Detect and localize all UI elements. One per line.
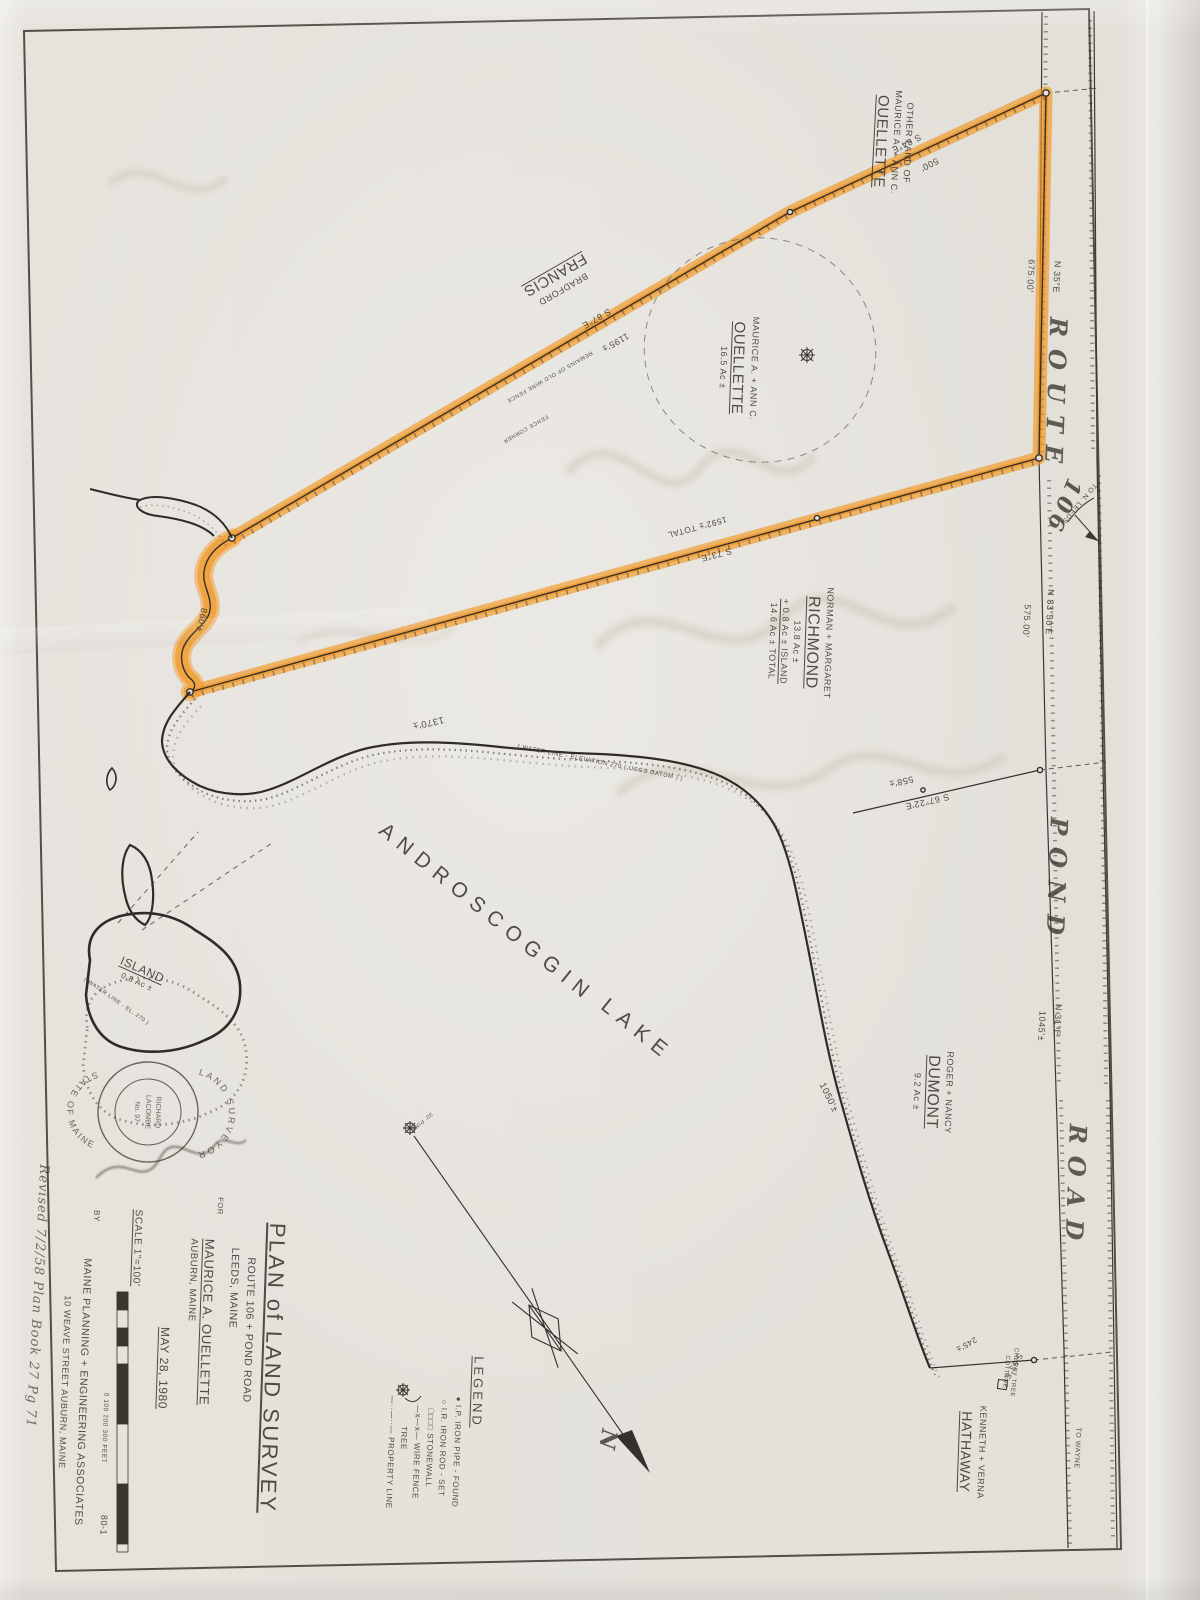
dist-860: 860'± <box>193 607 210 634</box>
title-plan-of-land-survey: PLAN of LAND SURVEY <box>253 1222 292 1513</box>
bearing-n31e: N 31°E <box>1050 1004 1063 1037</box>
title-scale: SCALE 1"=100' <box>129 1209 145 1286</box>
title-firm: MAINE PLANNING + ENGINEERING ASSOCIATES <box>71 1258 94 1526</box>
dist-1195: 1195'± <box>599 330 630 355</box>
dist-1370: 1370'± <box>411 713 445 732</box>
title-leeds-maine: LEEDS, MAINE <box>225 1247 241 1328</box>
road-pond: POND <box>1039 817 1075 948</box>
title-for: FOR <box>215 1197 225 1215</box>
road-route: ROUTE <box>1038 317 1075 476</box>
title-route-pond-road: ROUTE 106 + POND ROAD <box>239 1257 258 1403</box>
bearing-n33-30e: N 33°30'E <box>1042 589 1056 635</box>
dist-1050: 1050'± <box>815 1081 840 1115</box>
bearing-s67-22e: S 67°22'E <box>904 790 951 812</box>
note-to-wayne: TO WAYNE <box>1071 1427 1082 1469</box>
dist-1592: 1592'± TOTAL <box>666 514 728 541</box>
legend-stonewall: □□□□ STONEWALL <box>422 1408 435 1487</box>
map-lettering-layer: OTHER LAND OFMAURICE A. + ANN C.OUELLETT… <box>0 0 1200 1600</box>
dist-675: 675.00' <box>1023 259 1036 293</box>
note-water-line: ( WATER LINE - ELEVATION 270 ( USGS DATU… <box>516 744 683 784</box>
legend-iron-rod: ○ I.R. IRON ROD - SET <box>435 1399 449 1496</box>
bearing-s73e: S 73°E <box>699 544 733 563</box>
note-pine: 30' PINE <box>409 1110 434 1132</box>
legend-property-line: —··—··— PROPERTY LINE <box>383 1395 397 1509</box>
road-road: ROAD <box>1058 1123 1094 1252</box>
note-wire-fence: REMAINS OF OLD WIRE FENCE <box>505 348 594 403</box>
note-fence-corner: FENCE CORNER <box>501 412 549 444</box>
dist-575: 575.00' <box>1019 604 1032 638</box>
dist-500: 500' <box>918 154 940 173</box>
lake-name-1: ANDROSCOGGIN <box>373 817 601 1009</box>
legend-title: LEGEND <box>467 1356 486 1428</box>
owner-ouellette-parcel: MAURICE A. + ANN C.OUELLETTE16.5 Ac ± <box>715 315 761 420</box>
note-handwritten: Revised 7/2/58 Plan Book 27 Pg 71 <box>21 1164 52 1428</box>
legend-tree: TREE <box>397 1426 408 1450</box>
owner-dumont: ROGER + NANCYDUMONT9.2 Ac ± <box>908 1050 955 1134</box>
bearing-s87e: S 87°E <box>579 305 612 331</box>
dist-1045: 1045'± <box>1034 1011 1047 1042</box>
legend-iron-pipe: ● I.P. IRON PIPE - FOUND <box>449 1397 463 1508</box>
north-arrow-n: N <box>591 1427 623 1456</box>
sheet-number: 80-1 <box>97 1515 109 1536</box>
owner-richmond: NORMAN + MARGARETRICHMOND13.8 Ac ±+ 0.8 … <box>764 585 835 699</box>
scanned-survey-page: LAND SURVEYOR STATE OF MAINE RICHARD LAC… <box>0 0 1200 1600</box>
title-by: BY <box>91 1210 102 1222</box>
dist-558: 558'± <box>888 773 915 790</box>
scale-bar-ticks: 0 100 200 300 FEET <box>99 1392 110 1463</box>
lake-name-2: LAKE <box>595 992 679 1067</box>
bearing-n35e: N 35°E <box>1049 261 1062 294</box>
legend-wire-fence: —x—x— WIRE FENCE <box>409 1405 423 1499</box>
title-date: MAY 28, 1980 <box>154 1327 172 1410</box>
island-label: ISLAND0.8 Ac ± <box>113 954 166 997</box>
title-firm-address: 10 WEAVE STREET AUBURN, MAINE <box>55 1295 73 1468</box>
dist-245: 245'± <box>954 1334 978 1354</box>
owner-francis: BRADFORDFRANCIS <box>520 249 596 311</box>
owner-hathaway: KENNETH + VERNAHATHAWAY <box>955 1405 988 1499</box>
